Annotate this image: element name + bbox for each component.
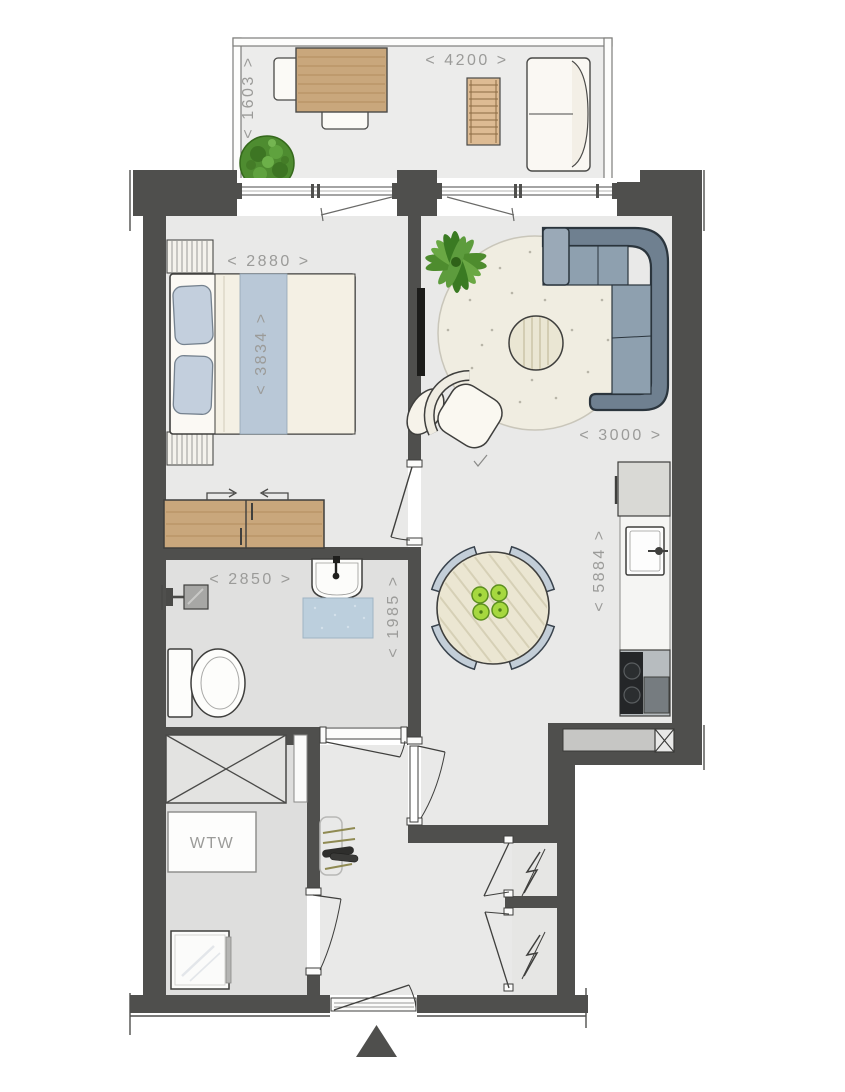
entrance-marker-icon xyxy=(356,1025,397,1057)
coffee-table xyxy=(509,316,563,370)
pillow xyxy=(173,285,214,345)
dim-bathroom-depth: < 1985 > xyxy=(385,574,402,657)
wall-notch xyxy=(617,170,640,182)
crossed-cupboard xyxy=(166,735,286,803)
balcony-lounge-sofa xyxy=(527,58,590,171)
meter-closet-2-floor xyxy=(512,908,557,995)
duct xyxy=(563,729,655,751)
dim-balcony-depth: < 1603 > xyxy=(240,55,257,138)
washing-machine xyxy=(171,931,231,989)
faucet-icon xyxy=(333,573,340,580)
riser-duct xyxy=(294,735,307,802)
dim-living-length: < 5884 > xyxy=(591,528,608,611)
shaft-icon xyxy=(655,729,674,752)
sofa-armrest xyxy=(543,228,569,285)
radiator xyxy=(167,240,213,273)
dim-bedroom-width: < 2880 > xyxy=(227,253,310,270)
dim-living-width: < 3000 > xyxy=(579,427,662,444)
window-band-bedroom xyxy=(237,178,397,221)
floorplan-drawing: < 4200 > < 1603 > xyxy=(0,0,845,1092)
kitchen-sink xyxy=(626,527,668,575)
toilet xyxy=(168,649,245,717)
bath-mat xyxy=(303,598,373,638)
tv xyxy=(417,288,425,376)
dim-balcony-width: < 4200 > xyxy=(425,52,508,69)
kitchen xyxy=(616,462,670,716)
room-balcony: < 4200 > < 1603 > xyxy=(233,38,612,190)
balcony-table xyxy=(296,48,387,112)
sofa-seat xyxy=(612,285,651,394)
balcony-wall-right xyxy=(604,38,612,179)
radiator xyxy=(167,432,213,465)
washbasin xyxy=(312,556,362,599)
window-band-living xyxy=(437,178,617,221)
fridge xyxy=(616,462,670,516)
double-bed: < 3834 > xyxy=(170,274,355,434)
wtw-label: WTW xyxy=(190,835,234,852)
balcony-wall-top xyxy=(233,38,612,46)
wtw-unit: WTW xyxy=(168,812,256,872)
stove xyxy=(620,650,670,716)
dim-bedroom-length: < 3834 > xyxy=(253,311,270,394)
balcony-slat-mat xyxy=(467,78,500,145)
floorplan-canvas: < 4200 > < 1603 > xyxy=(0,0,845,1092)
pillow xyxy=(173,355,213,414)
dim-bathroom-width: < 2850 > xyxy=(209,571,292,588)
